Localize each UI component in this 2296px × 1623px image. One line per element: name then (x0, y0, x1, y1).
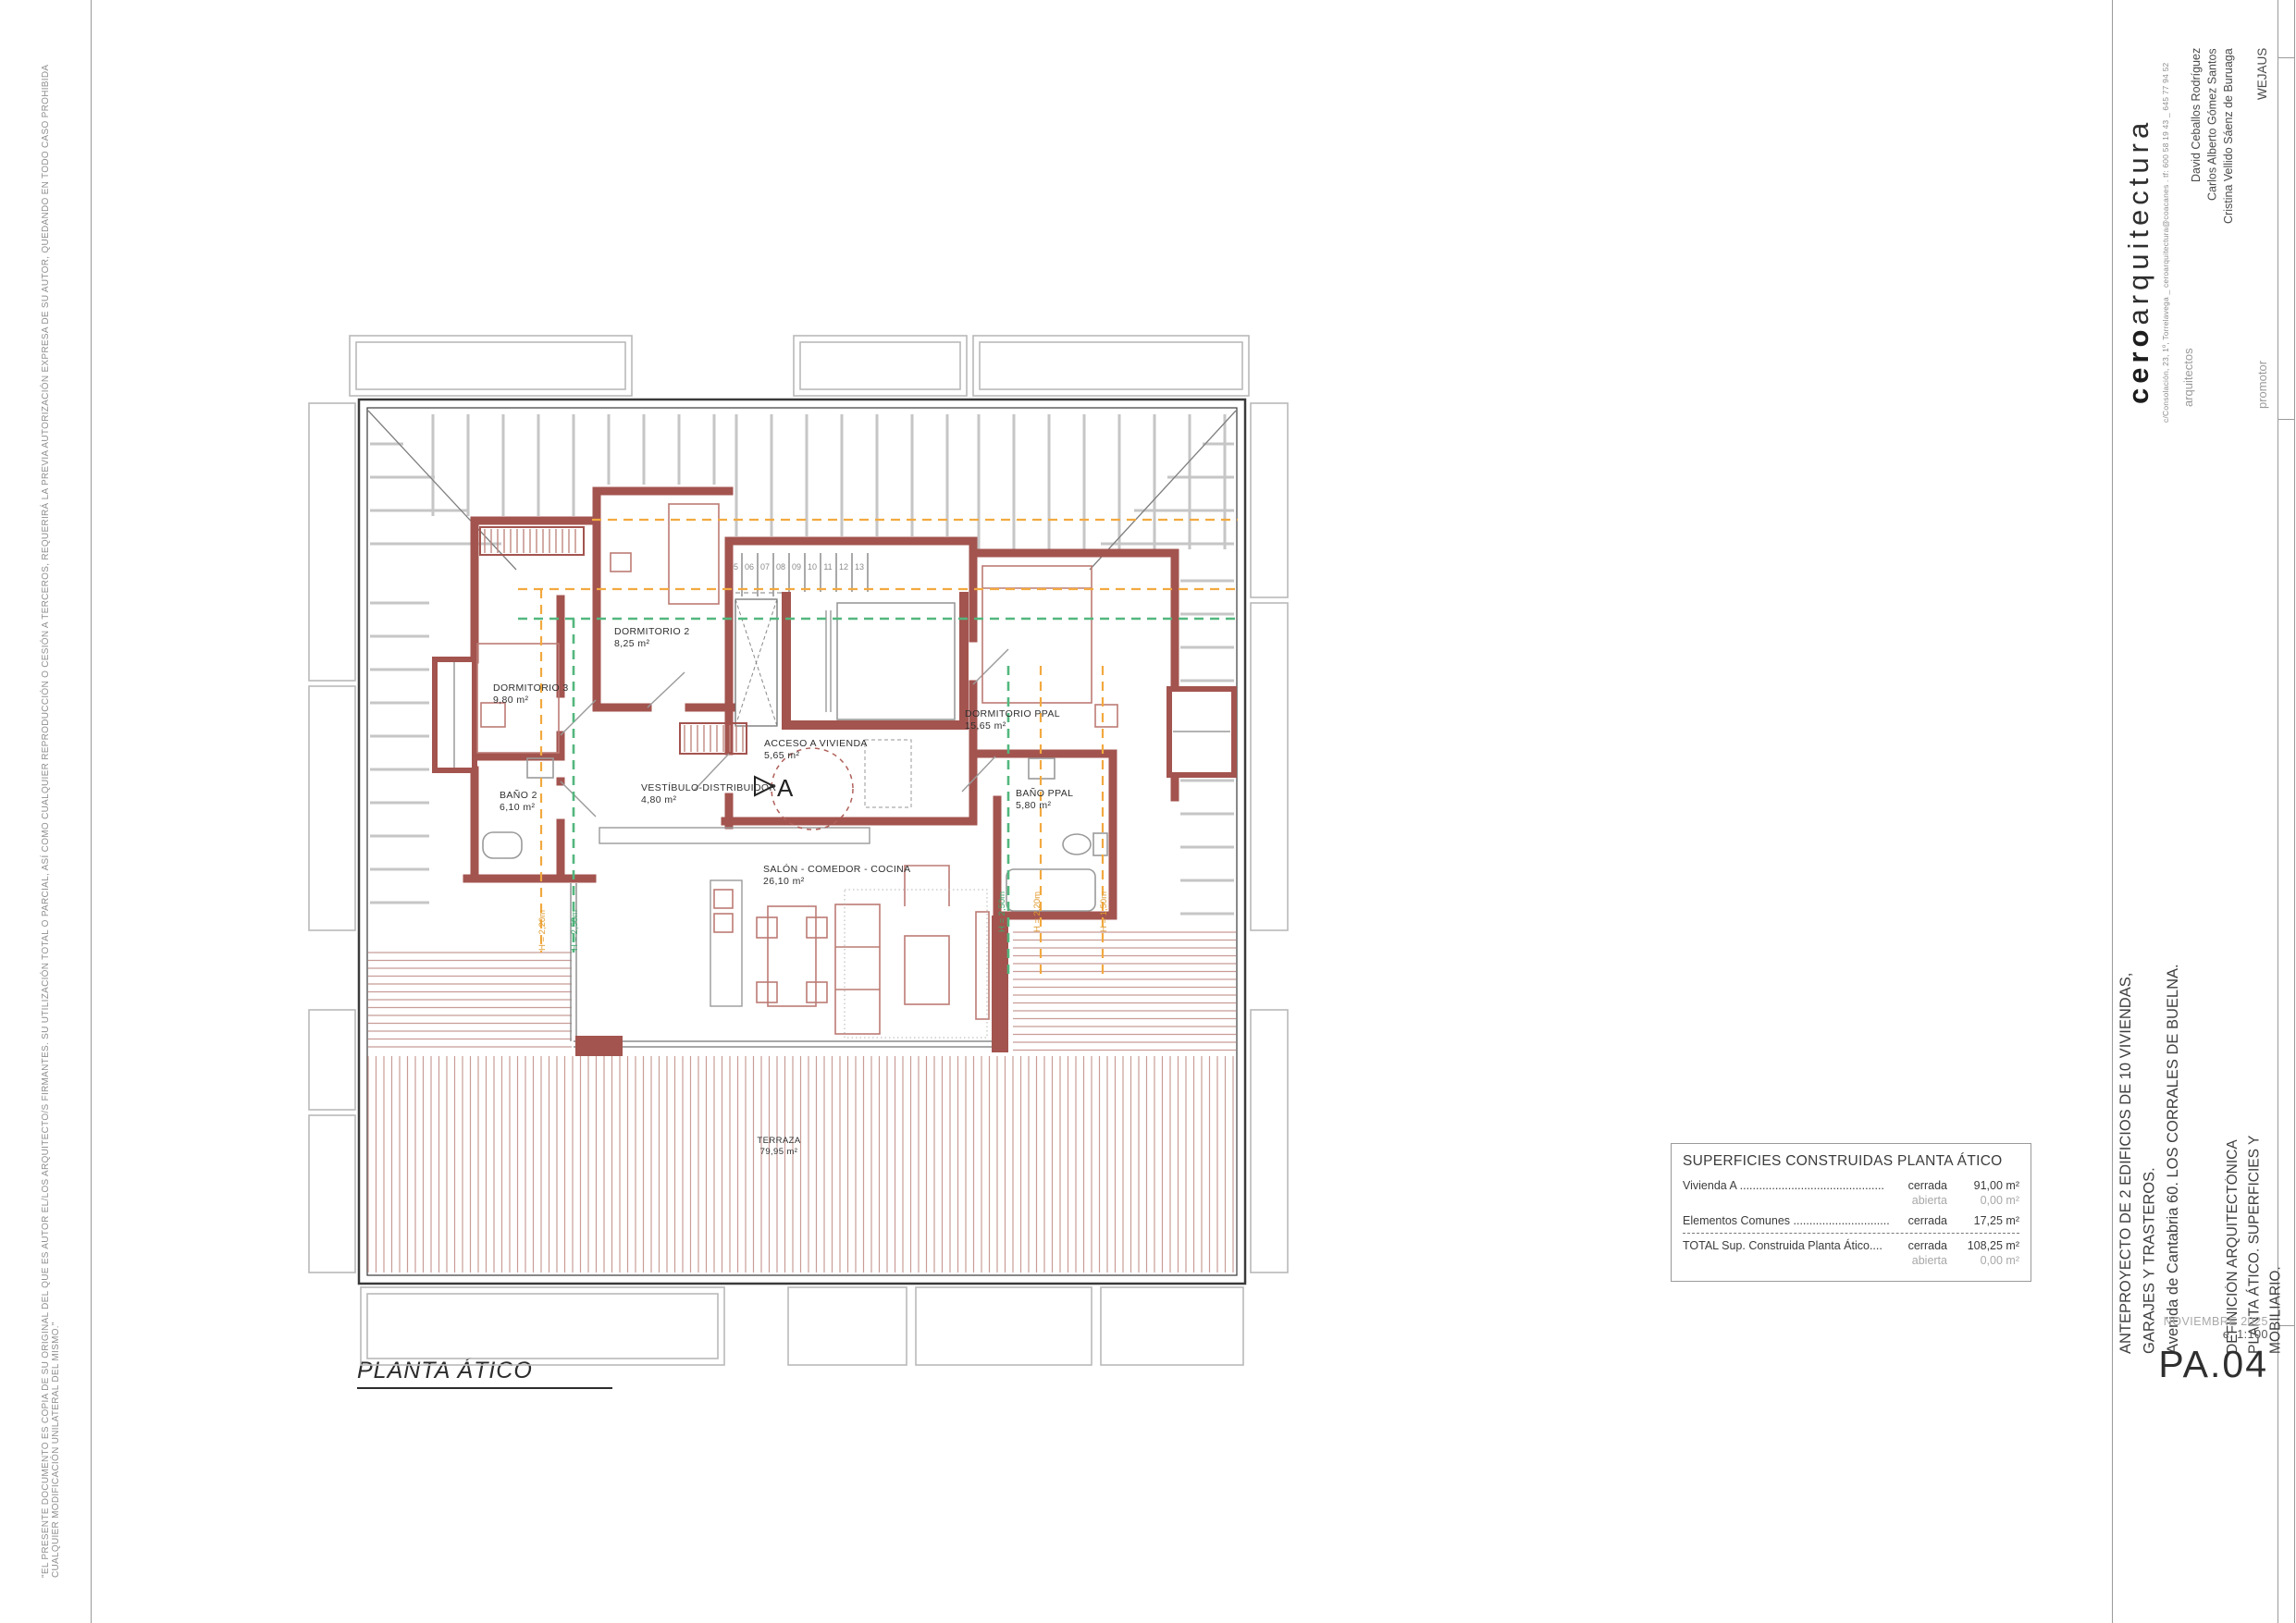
row-value: 0,00 m² (1947, 1253, 2019, 1268)
row-mode: cerrada (1894, 1178, 1947, 1193)
room-label-terraza: TERRAZA (757, 1136, 800, 1146)
titleblock-border-mid (2277, 0, 2278, 1623)
left-margin-line (91, 0, 92, 1623)
table-row: TOTAL Sup. Construida Planta Ático.... c… (1683, 1238, 2019, 1253)
svg-text:H = 2,20m: H = 2,20m (1032, 891, 1043, 932)
table-row: Elementos Comunes ......................… (1683, 1213, 2019, 1228)
studio-logo-light: arquitectura (2122, 118, 2154, 326)
drawing-sheet: "EL PRESENTE DOCUMENTO ES COPIA DE SU OR… (0, 0, 2296, 1623)
svg-text:H = 2,50m: H = 2,50m (997, 891, 1007, 932)
svg-text:5,65 m²: 5,65 m² (764, 750, 799, 761)
svg-text:8,25 m²: 8,25 m² (614, 638, 649, 649)
svg-text:06: 06 (745, 562, 754, 572)
studio-contact: c/Consolación, 23, 1º, Torrelavega _ cer… (2161, 51, 2174, 423)
room-label-acceso: ACCESO A VIVIENDA (764, 738, 868, 749)
room-label-dormitorio2: DORMITORIO 2 (614, 626, 690, 637)
row-mode: cerrada (1894, 1213, 1947, 1228)
svg-text:15,65 m²: 15,65 m² (965, 720, 1006, 732)
titleblock-tick-1 (2277, 57, 2295, 58)
row-label: Vivienda A .............................… (1683, 1178, 1894, 1193)
project-line-1: ANTEPROYECTO DE 2 EDIFICIOS DE 10 VIVIEN… (2115, 927, 2162, 1354)
table-row: abierta 0,00 m² (1683, 1193, 2019, 1208)
copyright-disclaimer: "EL PRESENTE DOCUMENTO ES COPIA DE SU OR… (41, 52, 63, 1578)
architect-3: Cristina Vellido Sáenz de Buruaga (2221, 48, 2238, 409)
areas-table: SUPERFICIES CONSTRUIDAS PLANTA ÁTICO Viv… (1671, 1143, 2031, 1282)
project-line-2: Avenida de Cantabria 60. LOS CORRALES DE… (2162, 927, 2186, 1354)
row-value: 108,25 m² (1947, 1238, 2019, 1253)
svg-text:13: 13 (855, 562, 864, 572)
row-mode: cerrada (1894, 1238, 1947, 1253)
svg-text:6,10 m²: 6,10 m² (500, 802, 535, 813)
svg-text:12: 12 (839, 562, 848, 572)
architect-names: David Ceballos RodríguezCarlos Alberto G… (2189, 48, 2240, 409)
architect-1: David Ceballos Rodríguez (2189, 48, 2205, 409)
svg-text:26,10 m²: 26,10 m² (763, 876, 805, 887)
svg-text:09: 09 (792, 562, 801, 572)
row-value: 17,25 m² (1947, 1213, 2019, 1228)
promoter-name: WEJAUS (2255, 48, 2272, 107)
drawing-line-1: DEFINICIÓN ARQUITECTÓNICA (2222, 1088, 2243, 1354)
sheet-number: PA.04 (2117, 1343, 2268, 1386)
table-row: abierta 0,00 m² (1683, 1253, 2019, 1268)
row-label: Elementos Comunes ......................… (1683, 1213, 1894, 1228)
promoter-label: promotor (2255, 350, 2272, 409)
svg-text:08: 08 (776, 562, 785, 572)
row-label: TOTAL Sup. Construida Planta Ático.... (1683, 1238, 1894, 1253)
row-mode: abierta (1894, 1253, 1947, 1268)
floor-plan-drawing: 0506 0708 0910 1112 13 14 15 16 17 (305, 328, 1290, 1369)
svg-text:4,80 m²: 4,80 m² (641, 794, 676, 805)
room-label-vestibulo: VESTÍBULO-DISTRIBUIDOR (641, 781, 777, 793)
svg-text:79,95 m²: 79,95 m² (760, 1147, 798, 1157)
sheet-footer: NOVIEMBRE 2025 e. 1:100 PA.04 (2117, 1315, 2268, 1386)
elevator-shaft-walls (786, 592, 964, 725)
svg-text:10: 10 (808, 562, 817, 572)
row-value: 0,00 m² (1947, 1193, 2019, 1208)
facade-pier-right (992, 916, 1008, 1052)
sheet-date: NOVIEMBRE 2025 (2117, 1315, 2268, 1328)
svg-text:11: 11 (823, 562, 832, 572)
svg-text:H = 2,20m: H = 2,20m (537, 910, 548, 951)
room-label-bano-ppal: BAÑO PPAL (1016, 787, 1073, 799)
table-row: Vivienda A .............................… (1683, 1178, 2019, 1193)
titleblock-tick-2 (2277, 419, 2295, 420)
room-label-bano2: BAÑO 2 (500, 789, 537, 801)
sheet-scale: e. 1:100 (2117, 1328, 2268, 1341)
section-marker-letter: A (777, 774, 794, 802)
svg-text:H = 1,50m: H = 1,50m (1099, 891, 1109, 932)
svg-text:07: 07 (760, 562, 770, 572)
svg-text:H = 2,50m: H = 2,50m (570, 910, 580, 951)
room-label-salon: SALÓN - COMEDOR - COCINA (763, 863, 911, 875)
room-label-dormitorio-ppal: DORMITORIO PPAL (965, 708, 1060, 719)
stair-numbers-top: 0506 0708 0910 1112 13 (729, 562, 864, 572)
row-label (1683, 1193, 1894, 1208)
drawing-title: DEFINICIÓN ARQUITECTÓNICAPLANTA ÁTICO. S… (2222, 1088, 2266, 1354)
areas-table-title: SUPERFICIES CONSTRUIDAS PLANTA ÁTICO (1683, 1153, 2019, 1170)
titleblock-border-right (2294, 0, 2295, 1623)
svg-text:5,80 m²: 5,80 m² (1016, 800, 1051, 811)
row-value: 91,00 m² (1947, 1178, 2019, 1193)
table-divider (1683, 1233, 2019, 1234)
row-label (1683, 1253, 1894, 1268)
room-label-dormitorio3: DORMITORIO 3 (493, 682, 569, 694)
facade-pier-left (575, 1036, 623, 1056)
titleblock-border-left (2112, 0, 2113, 1623)
project-title: ANTEPROYECTO DE 2 EDIFICIOS DE 10 VIVIEN… (2115, 927, 2163, 1354)
architect-2: Carlos Alberto Gómez Santos (2205, 48, 2222, 409)
studio-logo-bold: cero (2122, 326, 2154, 404)
drawing-line-2: PLANTA ÁTICO. SUPERFICIES Y MOBILIARIO. (2243, 1088, 2287, 1354)
row-mode: abierta (1894, 1193, 1947, 1208)
studio-logo: ceroarquitectura (2122, 51, 2161, 404)
svg-text:9,80 m²: 9,80 m² (493, 695, 528, 706)
